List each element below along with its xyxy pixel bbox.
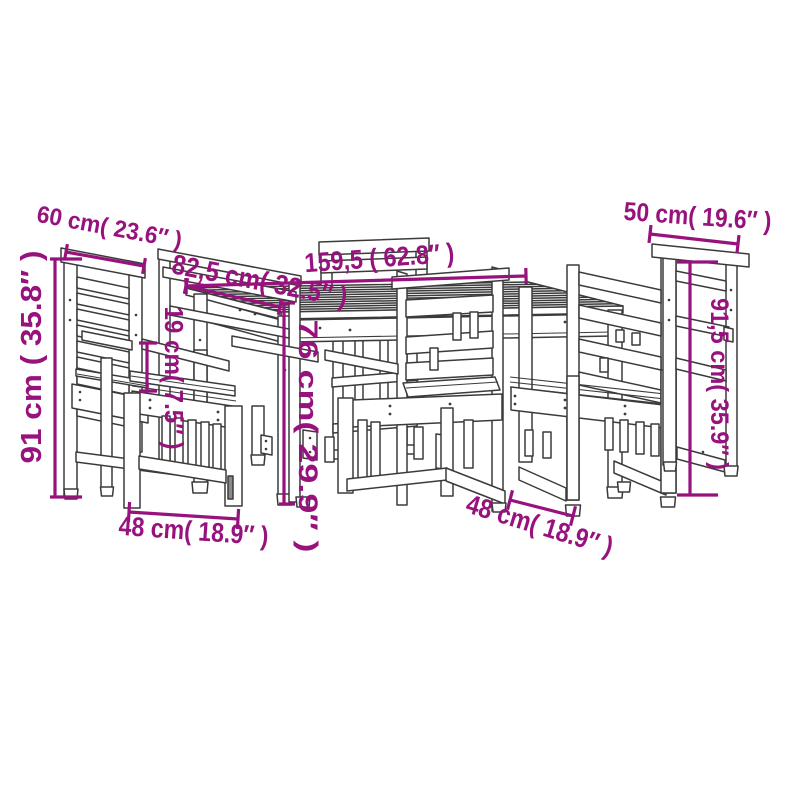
svg-text:91 cm ( 35.8″ ): 91 cm ( 35.8″ ) [16, 251, 48, 464]
svg-text:76 cm( 29.9″ ): 76 cm( 29.9″ ) [293, 320, 323, 553]
svg-text:91,5 cm( 35.9″ ): 91,5 cm( 35.9″ ) [705, 298, 733, 470]
svg-text:19 cm( 7.5″ ): 19 cm( 7.5″ ) [159, 307, 189, 450]
